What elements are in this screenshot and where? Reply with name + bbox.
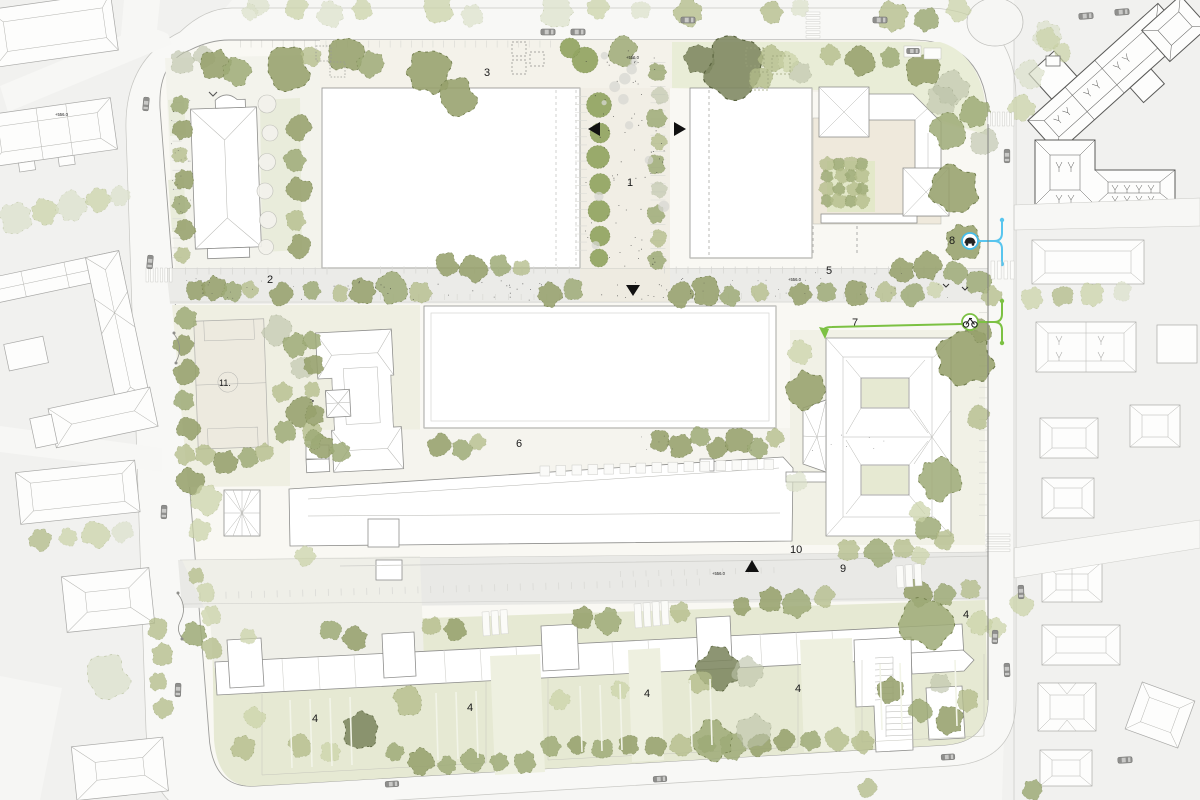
svg-text:3: 3 (484, 67, 490, 79)
svg-text:4: 4 (795, 683, 801, 695)
svg-text:5: 5 (826, 265, 832, 277)
svg-text:4: 4 (312, 713, 318, 725)
svg-text:11.: 11. (219, 378, 231, 388)
svg-text:1: 1 (627, 177, 633, 189)
svg-text:4: 4 (963, 609, 969, 621)
svg-text:9: 9 (840, 563, 846, 575)
svg-text:+556.0: +556.0 (712, 571, 726, 576)
svg-text:+556.0: +556.0 (788, 277, 802, 282)
svg-text:4: 4 (644, 688, 650, 700)
svg-text:6: 6 (516, 438, 522, 450)
svg-text:2: 2 (267, 274, 273, 286)
svg-text:8: 8 (949, 235, 955, 247)
svg-text:+556.0: +556.0 (55, 112, 69, 117)
svg-text:4: 4 (467, 702, 473, 714)
svg-text:+556.0: +556.0 (626, 55, 640, 60)
svg-text:10: 10 (790, 544, 802, 556)
